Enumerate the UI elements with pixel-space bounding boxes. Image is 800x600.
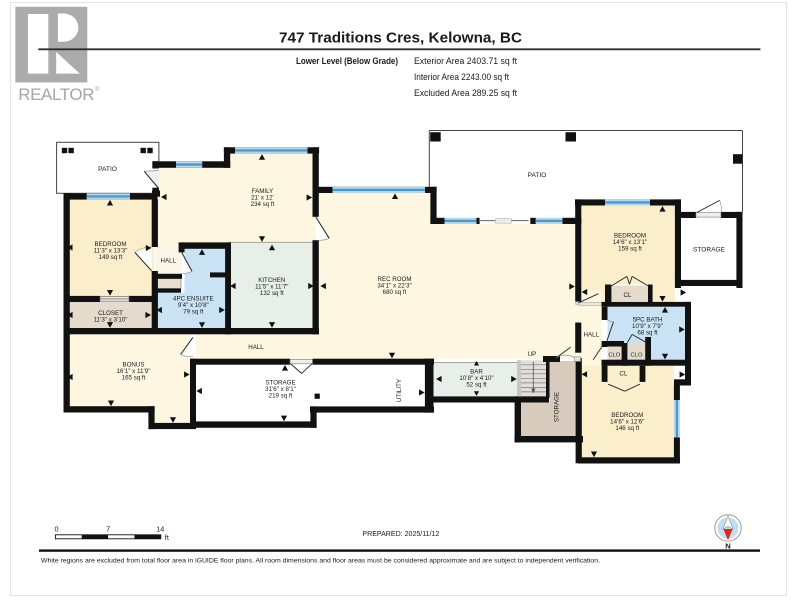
svg-text:ft: ft [165, 533, 169, 542]
svg-text:146 sq ft: 146 sq ft [615, 425, 639, 432]
svg-text:PATIO: PATIO [528, 172, 547, 179]
svg-text:14: 14 [156, 525, 164, 534]
svg-text:68 sq ft: 68 sq ft [637, 329, 658, 336]
svg-text:CLO: CLO [631, 353, 643, 359]
svg-text:747 Traditions Cres, Kelowna,: 747 Traditions Cres, Kelowna, BC [279, 29, 522, 46]
svg-text:11’3" x 3’10": 11’3" x 3’10" [94, 316, 128, 323]
svg-text:HALL: HALL [584, 332, 600, 339]
svg-text:149 sq ft: 149 sq ft [99, 254, 123, 261]
svg-text:Exterior Area 2403.71 sq ft: Exterior Area 2403.71 sq ft [414, 56, 518, 66]
svg-text:159 sq ft: 159 sq ft [618, 245, 642, 252]
svg-text:REALTOR: REALTOR [18, 85, 94, 104]
svg-text:CLO: CLO [608, 353, 620, 359]
svg-text:234 sq ft: 234 sq ft [251, 201, 275, 208]
svg-text:HALL: HALL [248, 344, 264, 351]
svg-text:132 sq ft: 132 sq ft [260, 290, 284, 297]
svg-text:CL: CL [620, 370, 628, 377]
svg-text:79 sq ft: 79 sq ft [183, 308, 204, 315]
svg-text:Excluded Area 289.25 sq ft: Excluded Area 289.25 sq ft [414, 88, 518, 98]
svg-text:0: 0 [54, 525, 58, 534]
svg-text:219 sq ft: 219 sq ft [269, 392, 293, 399]
svg-text:CL: CL [624, 292, 632, 299]
svg-text:White regions are excluded fro: White regions are excluded from total fl… [41, 557, 600, 564]
svg-text:PATIO: PATIO [98, 166, 117, 173]
svg-text:N: N [725, 542, 730, 551]
svg-text:680 sq ft: 680 sq ft [383, 289, 407, 296]
svg-text:52 sq ft: 52 sq ft [466, 382, 487, 389]
svg-text:Lower Level (Below Grade): Lower Level (Below Grade) [296, 56, 398, 66]
svg-text:®: ® [95, 86, 100, 93]
svg-text:UP: UP [528, 351, 537, 358]
svg-text:Interior Area 2243.00 sq ft: Interior Area 2243.00 sq ft [414, 72, 510, 82]
svg-text:UTILITY: UTILITY [396, 379, 403, 402]
svg-text:HALL: HALL [161, 257, 177, 264]
svg-text:PREPARED: 2025/11/12: PREPARED: 2025/11/12 [362, 529, 439, 538]
svg-text:STORAGE: STORAGE [554, 392, 561, 422]
svg-text:STORAGE: STORAGE [693, 246, 726, 253]
svg-text:165 sq ft: 165 sq ft [122, 375, 146, 382]
svg-text:7: 7 [106, 525, 110, 534]
